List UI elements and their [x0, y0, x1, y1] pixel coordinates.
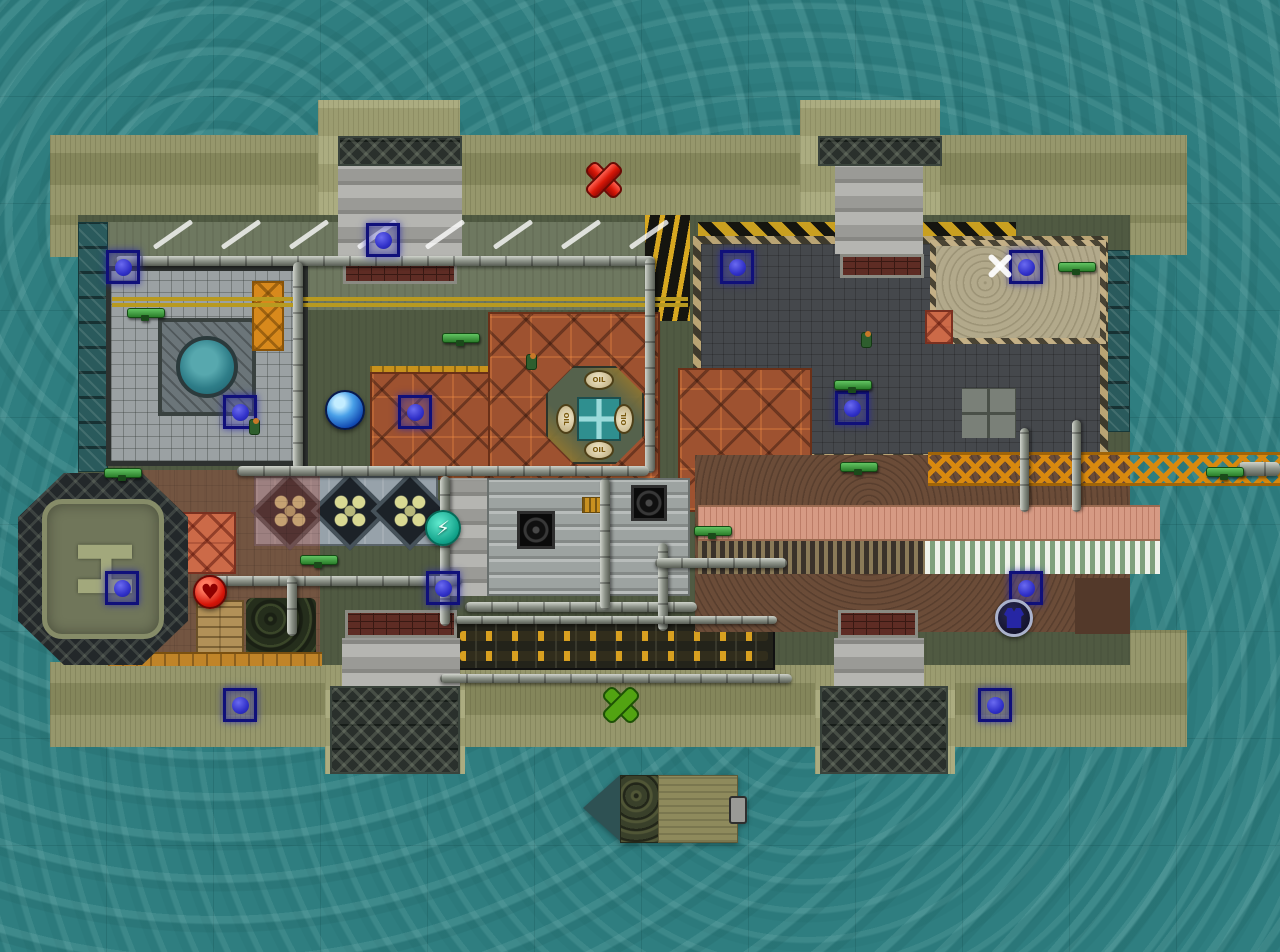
pier-ramp: [338, 166, 462, 256]
soldier-head: [865, 331, 871, 337]
health-heart-pickup[interactable]: ♥: [193, 575, 227, 609]
helipad-h-mark: H: [38, 513, 168, 625]
spawn-marker[interactable]: [105, 571, 139, 605]
wood-crates: [196, 600, 244, 658]
conveyor-cells: [460, 631, 768, 641]
pier-brick: [840, 254, 924, 278]
boat-camo-deck: [620, 775, 660, 843]
marker-dot: [115, 259, 132, 276]
pier-brick: [838, 610, 918, 638]
roof-fan: [517, 511, 555, 549]
oil-gauge: OIL: [556, 404, 576, 434]
pipe-segment: [645, 258, 655, 473]
red-x-pickup[interactable]: [581, 157, 623, 199]
marker-dot: [729, 259, 746, 276]
oil-gauge: OIL: [584, 440, 614, 460]
dock-right-top: [1130, 215, 1187, 255]
pipe-segment: [600, 478, 610, 610]
hedge: [246, 598, 316, 658]
spawn-marker[interactable]: [366, 223, 400, 257]
gun-pickup[interactable]: [834, 378, 870, 393]
lightning-pickup[interactable]: ⚡: [425, 510, 461, 546]
pink-walkway: [698, 505, 1160, 541]
gun-pickup[interactable]: [300, 553, 336, 568]
spawn-marker[interactable]: [835, 391, 869, 425]
boat-bow: [583, 775, 620, 841]
army-soldier[interactable]: [249, 419, 260, 435]
pipe-segment: [1020, 428, 1029, 512]
marker-dot: [1018, 259, 1035, 276]
gun-pickup[interactable]: [694, 524, 730, 539]
helipad: H: [18, 473, 188, 665]
green-x-pickup[interactable]: [598, 682, 640, 724]
conveyor-cells: [460, 651, 768, 661]
marker-dot: [1018, 580, 1035, 597]
gun-pickup[interactable]: [1058, 260, 1094, 275]
spawn-marker[interactable]: [398, 395, 432, 429]
pipe-segment: [200, 576, 462, 586]
helipad-pad: H: [42, 499, 164, 639]
dock-panels-left: [78, 222, 108, 472]
pipe-segment: [115, 256, 655, 266]
orange-crates: [252, 281, 284, 351]
pallet-squares: [962, 388, 1016, 438]
gun-pickup[interactable]: [104, 466, 140, 481]
awning-stripes: [925, 541, 1160, 574]
boat[interactable]: [583, 775, 743, 841]
pipe-segment: [655, 558, 787, 568]
oil-separator-unit: OIL OIL OIL OIL: [546, 366, 644, 464]
game-map: H OIL OIL OIL OIL ♥⚡: [0, 0, 1280, 952]
gun-magazine: [854, 469, 862, 475]
pier-ramp: [834, 638, 924, 686]
gun-magazine: [141, 315, 149, 321]
gun-magazine: [848, 387, 856, 393]
dock-bottom-right-step: [1130, 630, 1187, 665]
pipe-segment: [237, 466, 649, 476]
gun-pickup[interactable]: [840, 460, 876, 475]
roof-fan: [631, 485, 667, 521]
gun-magazine: [118, 475, 126, 481]
painted-x-mark: [983, 249, 1017, 283]
boat-engine: [729, 796, 747, 824]
shield-orb-pickup[interactable]: [325, 390, 365, 430]
spawn-marker[interactable]: [426, 571, 460, 605]
soldier-head: [530, 353, 536, 359]
spawn-marker[interactable]: [106, 250, 140, 284]
spawn-marker[interactable]: [978, 688, 1012, 722]
pier-truss: [330, 686, 460, 774]
marker-dot: [232, 697, 249, 714]
road-yellow-line: [112, 303, 688, 307]
marker-dot: [987, 697, 1004, 714]
pipe-segment: [1072, 420, 1081, 512]
pier-truss: [818, 136, 942, 166]
gun-magazine: [1220, 474, 1228, 480]
marker-dot: [375, 232, 392, 249]
gun-magazine: [314, 562, 322, 568]
army-soldier[interactable]: [861, 332, 872, 348]
spawn-marker[interactable]: [223, 688, 257, 722]
pipe-segment: [293, 262, 303, 470]
gun-pickup[interactable]: [442, 331, 478, 346]
marker-dot: [844, 400, 861, 417]
dock-left-col: [50, 215, 80, 257]
pier-truss: [820, 686, 948, 774]
spawn-marker[interactable]: [720, 250, 754, 284]
armor-pickup[interactable]: [995, 599, 1033, 637]
dirt-dark-patch: [1075, 578, 1130, 634]
pipe-segment: [455, 616, 777, 624]
oil-gauge: OIL: [614, 404, 634, 434]
road-yellow-line: [112, 297, 688, 301]
pipe-segment: [287, 576, 297, 636]
pipe-segment: [1238, 462, 1280, 476]
boat-main-deck: [658, 775, 738, 843]
marker-dot: [435, 580, 452, 597]
pier-ramp: [835, 166, 923, 254]
gun-magazine: [708, 533, 716, 539]
gun-pickup[interactable]: [127, 306, 163, 321]
oil-gauge: OIL: [584, 370, 614, 390]
marker-dot: [114, 580, 131, 597]
marker-dot: [232, 404, 249, 421]
gun-magazine: [1072, 269, 1080, 275]
armor-vest-icon: [1004, 608, 1024, 628]
marker-dot: [407, 404, 424, 421]
cooling-pool: [176, 336, 238, 398]
army-soldier[interactable]: [526, 354, 537, 370]
pier-truss: [338, 136, 462, 166]
gun-pickup[interactable]: [1206, 465, 1242, 480]
soldier-head: [253, 418, 259, 424]
red-crate: [925, 310, 953, 344]
gun-magazine: [456, 340, 464, 346]
